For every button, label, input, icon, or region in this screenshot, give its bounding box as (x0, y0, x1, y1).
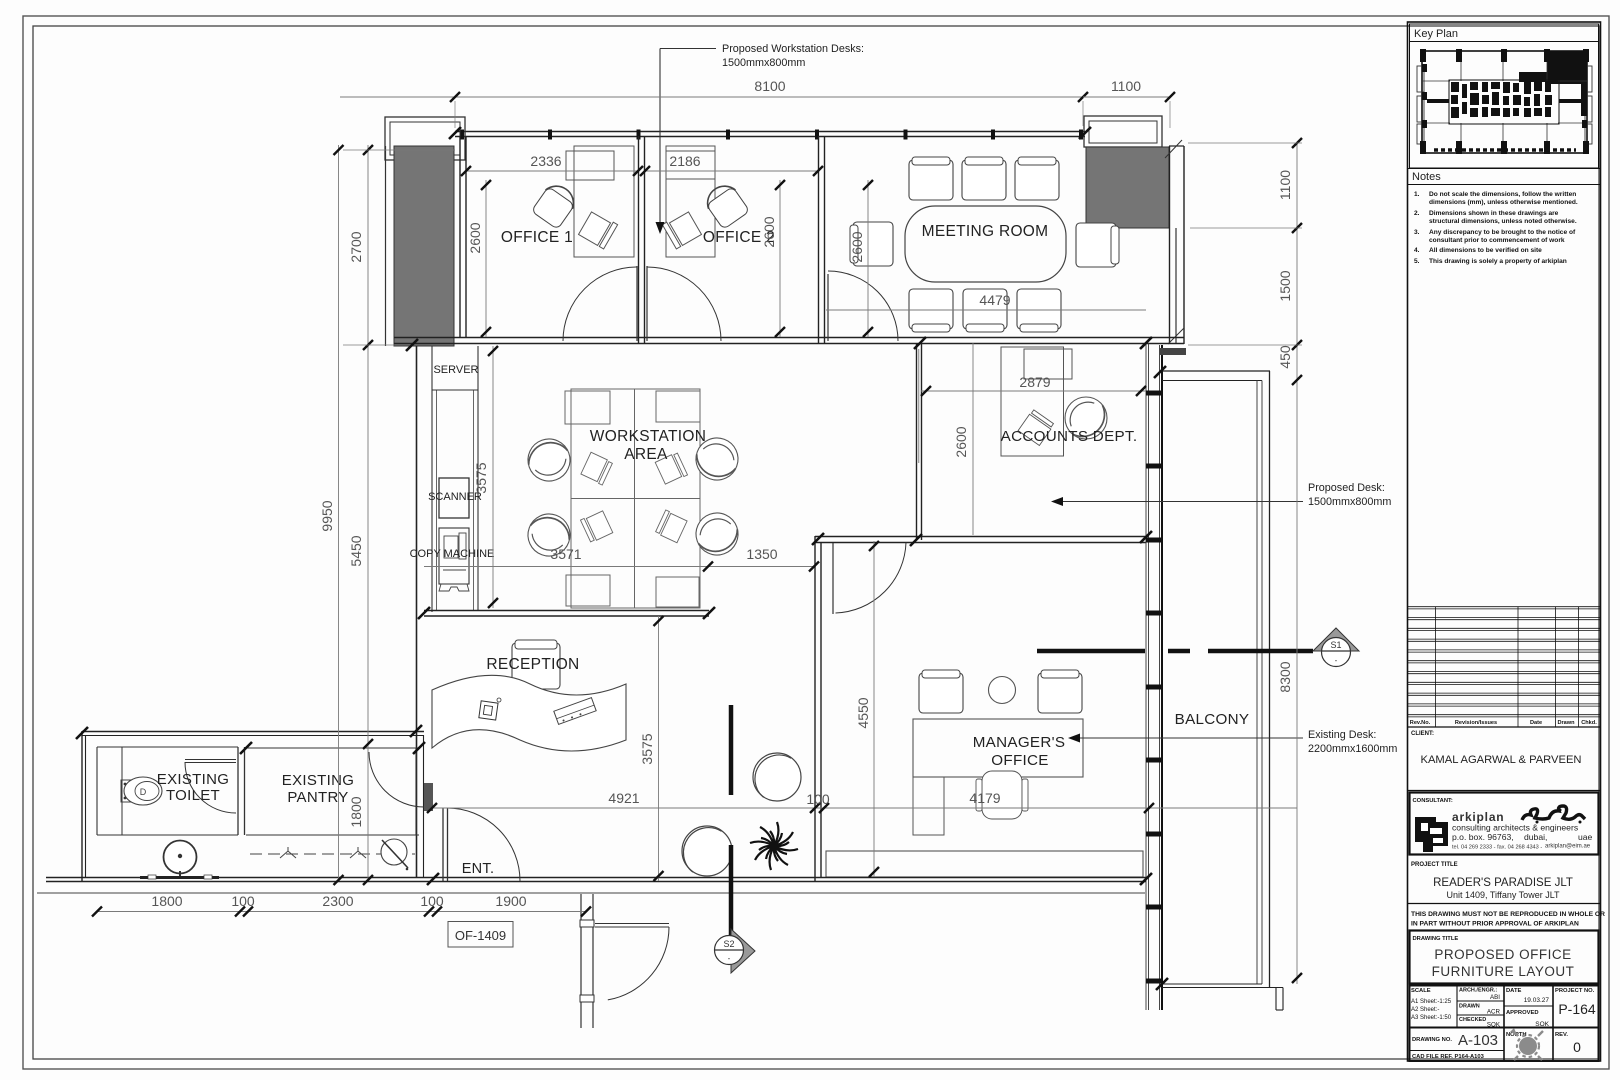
svg-text:4179: 4179 (969, 790, 1000, 806)
svg-text:Revision/Issues: Revision/Issues (1455, 720, 1497, 726)
svg-text:2186: 2186 (669, 153, 700, 169)
svg-text:3.: 3. (1414, 229, 1420, 236)
svg-text:A1 Sheet:-1:25: A1 Sheet:-1:25 (1411, 999, 1452, 1005)
svg-text:1800: 1800 (151, 893, 182, 909)
svg-text:2600: 2600 (849, 231, 865, 262)
svg-text:D: D (140, 787, 147, 797)
svg-text:READER'S PARADISE JLT: READER'S PARADISE JLT (1433, 877, 1573, 889)
svg-text:5.: 5. (1414, 258, 1420, 265)
svg-text:IN PART WITHOUT PRIOR APPR: IN PART WITHOUT PRIOR APPROVAL OF ARKIPL… (1411, 921, 1579, 928)
svg-text:BALCONY: BALCONY (1175, 711, 1250, 728)
svg-text:1100: 1100 (1111, 78, 1141, 94)
svg-text:Proposed Workstation Desks:: Proposed Workstation Desks: (722, 43, 864, 55)
svg-text:9950: 9950 (319, 500, 335, 531)
svg-text:FURNITURE LAYOUT: FURNITURE LAYOUT (1432, 964, 1575, 979)
svg-text:All dimensions to be verified: All dimensions to be verified on site (1429, 247, 1542, 254)
svg-text:1100: 1100 (1277, 170, 1293, 200)
svg-text:A3 Sheet:-1:50: A3 Sheet:-1:50 (1411, 1015, 1452, 1021)
svg-text:DRAWN: DRAWN (1459, 1004, 1480, 1010)
svg-text:DRAWING NO.: DRAWING NO. (1412, 1037, 1452, 1043)
svg-text:Existing Desk:: Existing Desk: (1308, 729, 1376, 741)
svg-text:5450: 5450 (348, 535, 364, 566)
svg-text:RECEPTION: RECEPTION (486, 656, 579, 673)
svg-text:P-164: P-164 (1558, 1001, 1596, 1017)
svg-text:2879: 2879 (1019, 374, 1050, 390)
svg-text:Chkd.: Chkd. (1581, 720, 1597, 726)
svg-text:PROJECT NO.: PROJECT NO. (1555, 988, 1595, 994)
svg-text:Date: Date (1530, 720, 1542, 726)
svg-text:CHECKED: CHECKED (1459, 1017, 1486, 1023)
svg-text:consulting architects & engine: consulting architects & engineers (1452, 823, 1578, 833)
svg-text:3575: 3575 (639, 733, 655, 764)
svg-text:WORKSTATION: WORKSTATION (590, 428, 706, 445)
svg-text:4.: 4. (1414, 247, 1420, 254)
svg-text:4479: 4479 (979, 292, 1010, 308)
svg-text:CAD FILE REF. P164-A103: CAD FILE REF. P164-A103 (1412, 1054, 1485, 1060)
svg-text:This drawing is solely a prope: This drawing is solely a property of ark… (1429, 258, 1567, 265)
svg-text:DATE: DATE (1506, 988, 1521, 994)
svg-text:1900: 1900 (495, 893, 526, 909)
svg-text:SCALE: SCALE (1411, 988, 1431, 994)
svg-text:CONSULTANT:: CONSULTANT: (1413, 798, 1453, 804)
svg-text:Proposed Desk:: Proposed Desk: (1308, 482, 1385, 494)
svg-text:100: 100 (231, 893, 255, 909)
svg-text:MANAGER'S: MANAGER'S (973, 734, 1066, 751)
svg-text:Rev.No.: Rev.No. (1410, 720, 1431, 726)
svg-text:DRAWING TITLE: DRAWING TITLE (1413, 936, 1459, 942)
svg-text:KAMAL AGARWAL & PARVEEN: KAMAL AGARWAL & PARVEEN (1420, 754, 1581, 766)
svg-text:1350: 1350 (746, 546, 777, 562)
svg-text:PANTRY: PANTRY (287, 789, 348, 806)
svg-text:2336: 2336 (530, 153, 561, 169)
svg-text:4550: 4550 (855, 697, 871, 728)
svg-text:Do not scale the dimensions, f: Do not scale the dimensions, follow the … (1429, 191, 1576, 198)
svg-text:2600: 2600 (953, 426, 969, 457)
svg-text:4921: 4921 (608, 790, 639, 806)
svg-text:structural dimensions, unless: structural dimensions, unless noted othe… (1429, 218, 1577, 225)
svg-text:A2 Sheet:-: A2 Sheet:- (1411, 1007, 1439, 1013)
svg-text:Unit 1409, Tiffany Tower JLT: Unit 1409, Tiffany Tower JLT (1446, 890, 1560, 900)
svg-text:APPROVED: APPROVED (1506, 1010, 1539, 1016)
svg-text:2300: 2300 (322, 893, 353, 909)
svg-text:450: 450 (1277, 345, 1293, 369)
svg-text:100: 100 (806, 791, 830, 807)
svg-text:2600: 2600 (467, 222, 483, 253)
svg-text:TOILET: TOILET (166, 787, 220, 804)
svg-text:2600: 2600 (761, 216, 777, 247)
svg-text:19.03.27: 19.03.27 (1524, 997, 1550, 1004)
svg-text:PROPOSED OFFICE: PROPOSED OFFICE (1434, 947, 1571, 962)
svg-text:S1: S1 (1330, 640, 1341, 650)
svg-text:ACR: ACR (1487, 1009, 1501, 1016)
svg-text:ARCH./ENGR.:: ARCH./ENGR.: (1459, 988, 1497, 994)
svg-text:A-103: A-103 (1458, 1032, 1498, 1049)
svg-text:1800: 1800 (348, 796, 364, 827)
svg-text:ABI: ABI (1490, 994, 1500, 1001)
svg-text:S2: S2 (723, 939, 734, 949)
svg-text:3575: 3575 (473, 462, 489, 493)
svg-text:1500mmx800mm: 1500mmx800mm (1308, 496, 1391, 508)
svg-text:Key Plan: Key Plan (1414, 28, 1458, 40)
svg-text:CLIENT:: CLIENT: (1411, 731, 1434, 737)
svg-text:AREA: AREA (624, 446, 668, 463)
svg-text:2200mmx1600mm: 2200mmx1600mm (1308, 743, 1397, 755)
svg-text:-: - (728, 954, 731, 963)
svg-text:1.: 1. (1414, 191, 1420, 198)
svg-text:100: 100 (420, 893, 444, 909)
svg-text:COPY MACHINE: COPY MACHINE (410, 548, 495, 560)
svg-text:2.: 2. (1414, 210, 1420, 217)
svg-text:8100: 8100 (754, 78, 785, 94)
svg-text:Any discrepancy to be brought: Any discrepancy to be brought to the not… (1429, 229, 1576, 236)
svg-text:8300: 8300 (1277, 661, 1293, 692)
svg-text:OFFICE 1: OFFICE 1 (501, 229, 573, 246)
svg-text:-: - (1335, 656, 1338, 665)
svg-text:Notes: Notes (1412, 171, 1441, 183)
svg-text:arkiplan@eim.ae: arkiplan@eim.ae (1545, 844, 1591, 850)
svg-text:consultant prior to commenceme: consultant prior to commencement of work (1429, 237, 1565, 244)
svg-text:Dimensions shown in these draw: Dimensions shown in these drawings are (1429, 210, 1559, 217)
svg-text:Drawn: Drawn (1557, 720, 1575, 726)
svg-text:OFFICE: OFFICE (991, 752, 1049, 769)
svg-text:OF-1409: OF-1409 (455, 928, 506, 943)
svg-text:3571: 3571 (550, 546, 581, 562)
svg-text:1500: 1500 (1277, 270, 1293, 301)
svg-text:1500mmx800mm: 1500mmx800mm (722, 57, 805, 69)
svg-text:SERVER: SERVER (433, 364, 478, 376)
svg-text:PROJECT TITLE: PROJECT TITLE (1411, 862, 1458, 868)
svg-text:EXISTING: EXISTING (157, 771, 229, 788)
svg-text:ENT.: ENT. (462, 861, 495, 877)
svg-text:REV.: REV. (1555, 1032, 1568, 1038)
svg-text:MEETING ROOM: MEETING ROOM (922, 223, 1049, 240)
svg-text:2700: 2700 (348, 231, 364, 262)
svg-text:0: 0 (1573, 1039, 1581, 1055)
svg-text:tel. 04 269 2333 - fax. 04 268: tel. 04 269 2333 - fax. 04 268 4343 - (1452, 845, 1542, 851)
svg-text:EXISTING: EXISTING (282, 772, 354, 789)
svg-text:THIS DRAWING MUST NOT BE: THIS DRAWING MUST NOT BE REPRODUCED IN W… (1411, 911, 1605, 918)
svg-text:ACCOUNTS DEPT.: ACCOUNTS DEPT. (1001, 428, 1138, 445)
svg-text:dimensions (mm), unless other: dimensions (mm), unless otherwise mentio… (1429, 199, 1578, 206)
